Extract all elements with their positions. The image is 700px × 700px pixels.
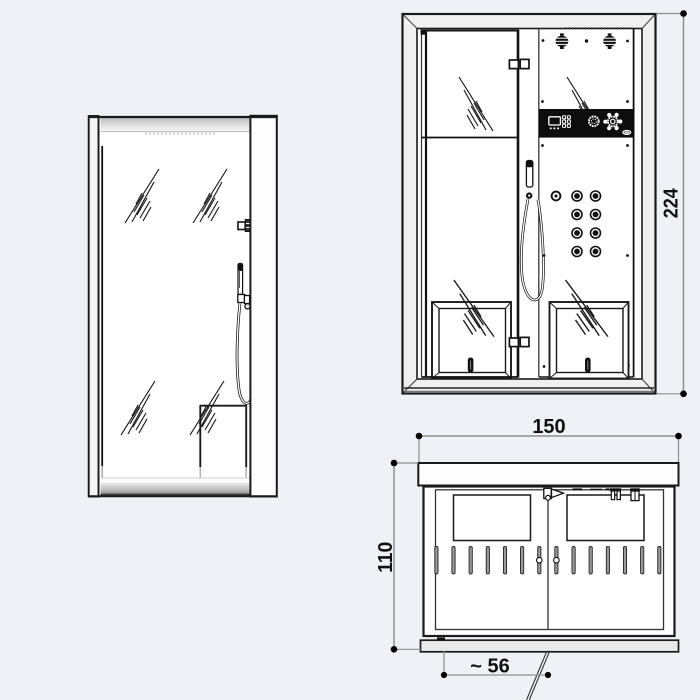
svg-text:110: 110 [375, 542, 397, 573]
svg-text:~ 56: ~ 56 [470, 655, 509, 677]
svg-text:224: 224 [661, 188, 683, 218]
svg-text:150: 150 [532, 416, 565, 438]
